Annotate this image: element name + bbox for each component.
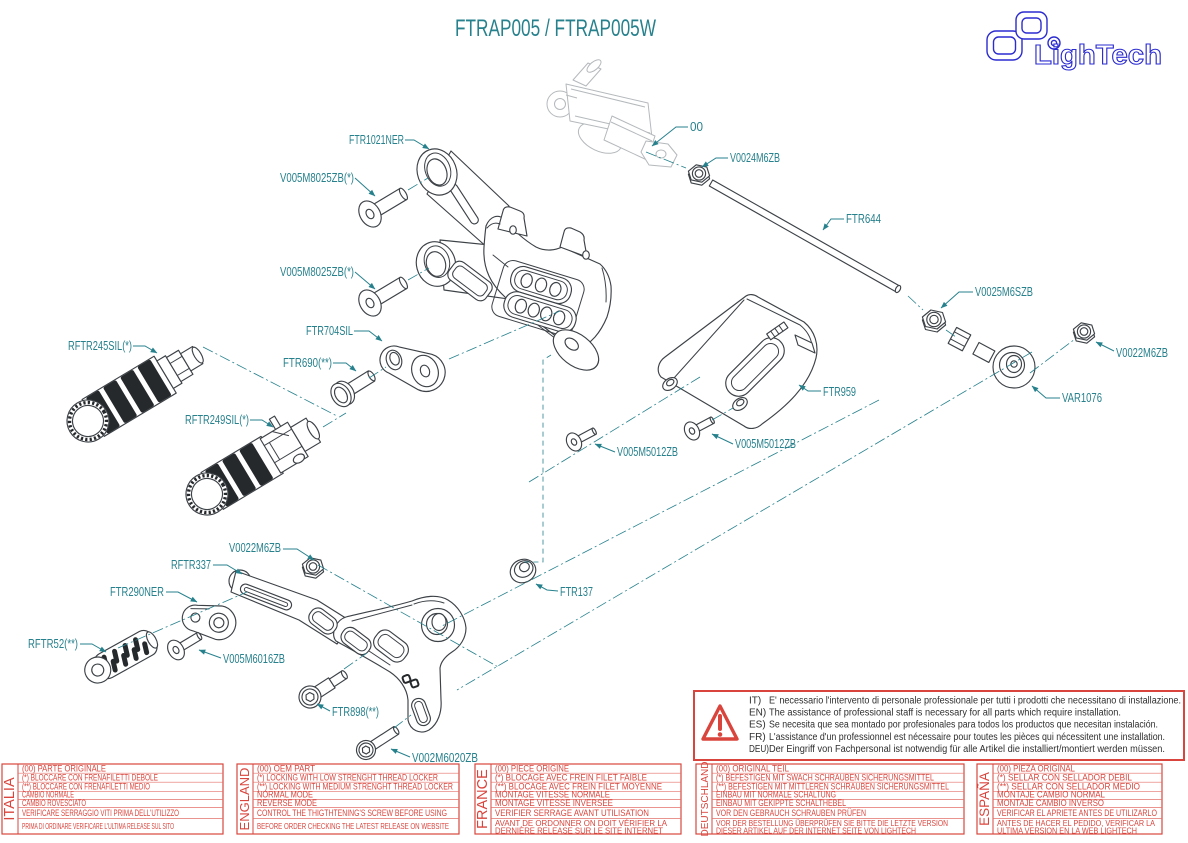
svg-text:FTR898(**): FTR898(**) — [332, 705, 379, 719]
svg-text:FTR704SIL: FTR704SIL — [306, 324, 353, 338]
svg-text:V005M8025ZB(*): V005M8025ZB(*) — [280, 265, 354, 279]
svg-text:V005M8025ZB(*): V005M8025ZB(*) — [280, 171, 354, 185]
svg-text:V0024M6ZB: V0024M6ZB — [730, 151, 780, 165]
svg-text:ES): ES) — [749, 720, 766, 731]
svg-text:DIESER ARTIKEL AUF DER INTERNE: DIESER ARTIKEL AUF DER INTERNET SEITE VO… — [716, 826, 916, 836]
svg-text:ENGLAND: ENGLAND — [237, 768, 252, 831]
svg-text:RFTR249SIL(*): RFTR249SIL(*) — [185, 413, 249, 427]
svg-text:V005M5012ZB: V005M5012ZB — [735, 437, 796, 451]
svg-text:FTR1021NER: FTR1021NER — [349, 133, 404, 147]
svg-text:V0022M6ZB: V0022M6ZB — [229, 541, 281, 555]
svg-text:Se necesita que sea montado po: Se necesita que sea montado por profesio… — [769, 720, 1158, 731]
svg-text:PRIMA DI ORDINARE VERIFICARE L: PRIMA DI ORDINARE VERIFICARE L'ULTIMA RE… — [22, 821, 174, 831]
svg-text:DEUTSCHLAND: DEUTSCHLAND — [700, 761, 711, 836]
svg-text:V0022M6ZB: V0022M6ZB — [1116, 346, 1168, 360]
svg-text:VERIFIER SERRAGE AVANT UTILISA: VERIFIER SERRAGE AVANT UTILISATION — [495, 808, 649, 818]
svg-text:FRANCE: FRANCE — [475, 769, 491, 829]
svg-text:V005M5012ZB: V005M5012ZB — [617, 445, 678, 459]
svg-text:RFTR337: RFTR337 — [171, 558, 211, 572]
svg-text:ESPAÑA: ESPAÑA — [977, 772, 992, 826]
svg-text:V002M6020ZB: V002M6020ZB — [412, 751, 478, 765]
svg-text:VOR DEN GEBRAUCH SCHRAUBEN PRÜ: VOR DEN GEBRAUCH SCHRAUBEN PRÜFEN — [716, 808, 866, 818]
svg-text:FTR690(**): FTR690(**) — [283, 356, 332, 370]
svg-text:DERNIÈRE RELEASE SUR LE SITE I: DERNIÈRE RELEASE SUR LE SITE INTERNET — [495, 826, 663, 836]
svg-text:MONTAGE VITESSE INVERSEE: MONTAGE VITESSE INVERSEE — [495, 798, 613, 808]
svg-text:ITALIA: ITALIA — [2, 777, 18, 821]
svg-text:CAMBIO ROVESCIATO: CAMBIO ROVESCIATO — [22, 798, 86, 808]
svg-text:FTR290NER: FTR290NER — [110, 585, 164, 599]
svg-text:EINBAU MIT GEKIPPTE SCHALTHEBE: EINBAU MIT GEKIPPTE SCHALTHEBEL — [716, 798, 846, 808]
svg-text:BEFORE ORDER CHECKING THE LATE: BEFORE ORDER CHECKING THE LATEST RELEASE… — [257, 821, 449, 831]
svg-text:V0025M6SZB: V0025M6SZB — [975, 285, 1033, 299]
svg-text:FTR959: FTR959 — [823, 385, 856, 399]
svg-text:V005M6016ZB: V005M6016ZB — [223, 652, 285, 666]
svg-text:L'assistance d'un professionne: L'assistance d'un professionnel est néce… — [769, 732, 1165, 743]
svg-text:DEU): DEU) — [749, 744, 769, 755]
svg-text:FTR644: FTR644 — [846, 212, 881, 226]
svg-text:E' necessario l'intervento di: E' necessario l'intervento di personale … — [769, 696, 1181, 707]
svg-text:VERIFICAR EL APRIETE ANTES DE: VERIFICAR EL APRIETE ANTES DE UTILIZARLO — [997, 808, 1157, 818]
svg-text:MONTAJE CAMBIO INVERSO: MONTAJE CAMBIO INVERSO — [997, 798, 1104, 808]
svg-text:FR): FR) — [749, 732, 766, 743]
svg-text:RFTR52(**): RFTR52(**) — [28, 637, 78, 651]
svg-text:REVERSE MODE: REVERSE MODE — [257, 798, 317, 808]
svg-text:LighTech: LighTech — [1034, 39, 1162, 70]
svg-text:RFTR245SIL(*): RFTR245SIL(*) — [68, 339, 132, 353]
svg-text:EN): EN) — [749, 708, 766, 719]
svg-text:VAR1076: VAR1076 — [1062, 391, 1102, 405]
svg-text:CONTROL THE THIGTHTENING'S SCR: CONTROL THE THIGTHTENING'S SCREW BEFORE … — [257, 808, 447, 818]
svg-text:IT): IT) — [749, 696, 761, 707]
svg-text:Der Eingriff von Fachpersonal: Der Eingriff von Fachpersonal ist notwen… — [769, 744, 1165, 755]
svg-text:The assistance of professional: The assistance of professional staff is … — [769, 708, 1121, 719]
svg-text:FTR137: FTR137 — [560, 585, 593, 599]
svg-text:FTRAP005 / FTRAP005W: FTRAP005 / FTRAP005W — [455, 15, 656, 42]
svg-text:00: 00 — [690, 120, 703, 134]
svg-text:VERIFICARE SERRAGGIO VITI PRIM: VERIFICARE SERRAGGIO VITI PRIMA DELL'UTI… — [22, 808, 179, 818]
svg-text:ULTIMA VERSION EN LA WEB LIGHT: ULTIMA VERSION EN LA WEB LIGHTECH — [997, 826, 1137, 836]
